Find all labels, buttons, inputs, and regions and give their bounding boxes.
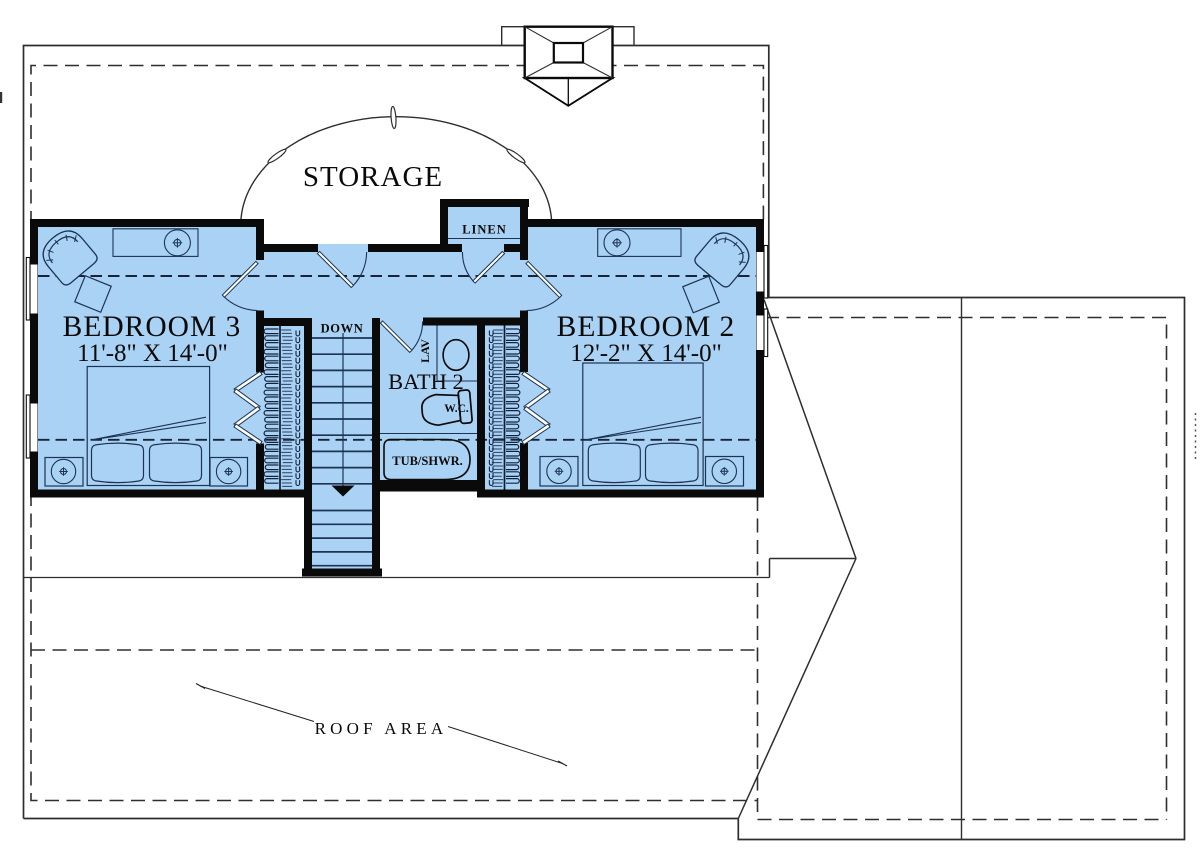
svg-text:ROOF AREA: ROOF AREA (315, 719, 448, 738)
svg-text:LINEN: LINEN (462, 223, 507, 237)
svg-text:BATH 2: BATH 2 (388, 369, 464, 394)
svg-text:TUB/SHWR.: TUB/SHWR. (392, 454, 463, 468)
svg-text:W.C.: W.C. (444, 403, 469, 415)
svg-text:BEDROOM 3: BEDROOM 3 (63, 311, 242, 343)
svg-text:11'-8" X 14'-0": 11'-8" X 14'-0" (77, 340, 228, 367)
svg-text:STORAGE: STORAGE (303, 161, 443, 193)
svg-text:DOWN: DOWN (321, 322, 364, 336)
svg-text:BEDROOM 2: BEDROOM 2 (557, 311, 736, 343)
svg-text:12'-2" X 14'-0": 12'-2" X 14'-0" (570, 340, 722, 367)
svg-text:LAV: LAV (418, 339, 432, 363)
